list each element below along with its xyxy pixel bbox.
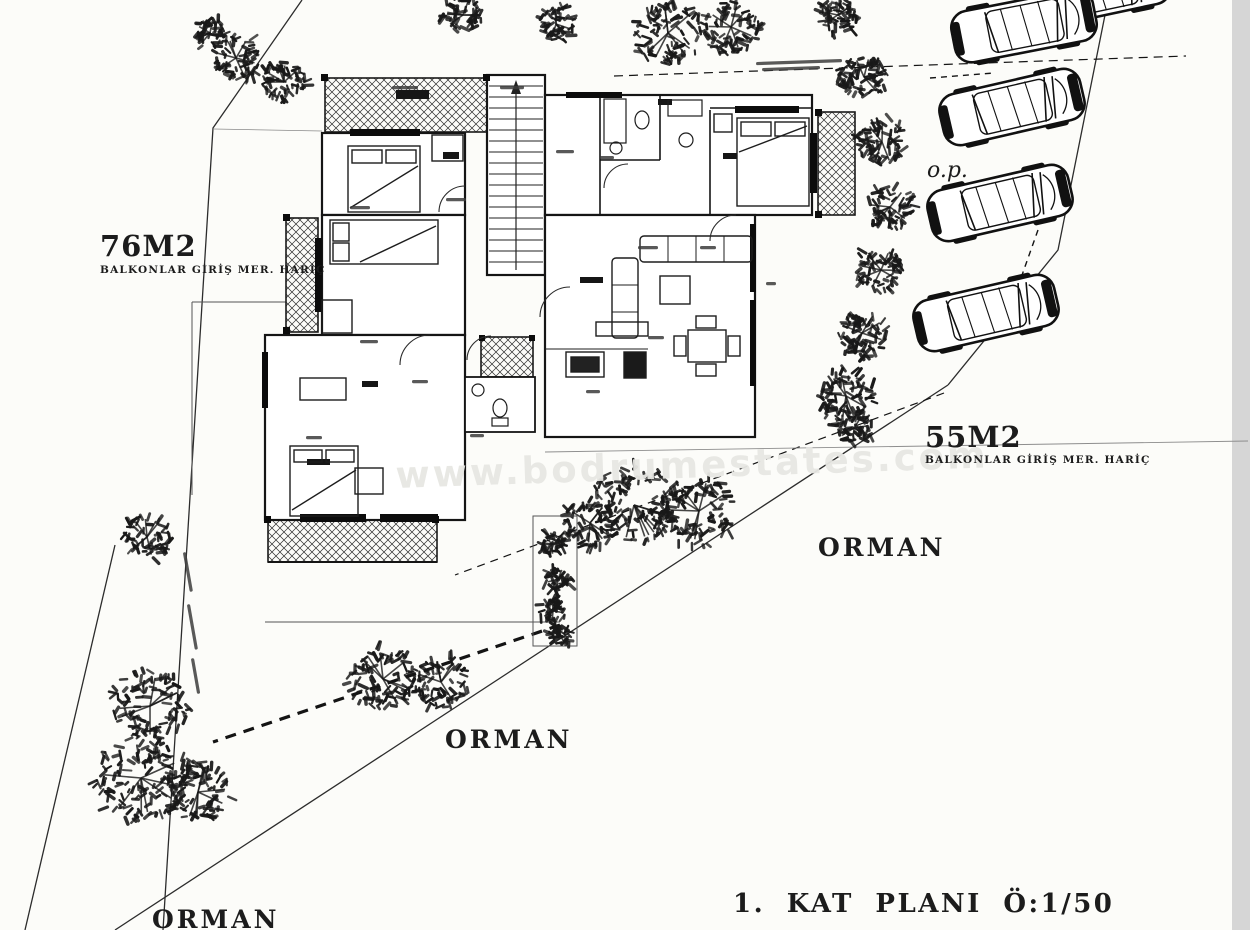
annotation-smudge: [392, 86, 418, 89]
annotation-smudge: [700, 246, 716, 249]
plan-title: 1. KAT PLANI Ö:1/50: [733, 887, 1114, 919]
annotation-smudge: [350, 206, 370, 209]
parking-label: o.p.: [927, 158, 968, 183]
annotation-smudge: [638, 246, 658, 249]
site-plan-drawing: www.bodrumestates.com 76M2 BALKONLAR GİR…: [0, 0, 1250, 930]
area-label-76m2: 76M2: [100, 229, 197, 263]
area-note-55m2: BALKONLAR GİRİŞ MER. HARİÇ: [925, 452, 1151, 466]
annotation-smudge: [500, 86, 524, 89]
forest-label-1: ORMAN: [818, 533, 945, 562]
scan-edge-strip: [1232, 0, 1250, 930]
forest-label-3: ORMAN: [152, 905, 279, 930]
annotation-smudge: [360, 340, 378, 343]
annotation-smudge: [766, 282, 776, 285]
annotation-smudge: [412, 380, 428, 383]
annotation-smudge: [470, 434, 484, 437]
area-label-55m2: 55M2: [925, 420, 1022, 454]
annotation-smudge: [586, 390, 600, 393]
annotation-smudge: [600, 156, 614, 159]
area-note-76m2: BALKONLAR GİRİŞ MER. HARİÇ: [100, 262, 326, 276]
annotation-smudge: [556, 150, 574, 153]
annotation-smudge: [306, 436, 322, 439]
annotation-smudge: [560, 514, 574, 517]
site-plan-sheet: www.bodrumestates.com 76M2 BALKONLAR GİR…: [0, 0, 1250, 930]
forest-label-2: ORMAN: [445, 725, 572, 754]
annotation-smudge: [648, 336, 664, 339]
annotation-smudge: [446, 198, 466, 201]
